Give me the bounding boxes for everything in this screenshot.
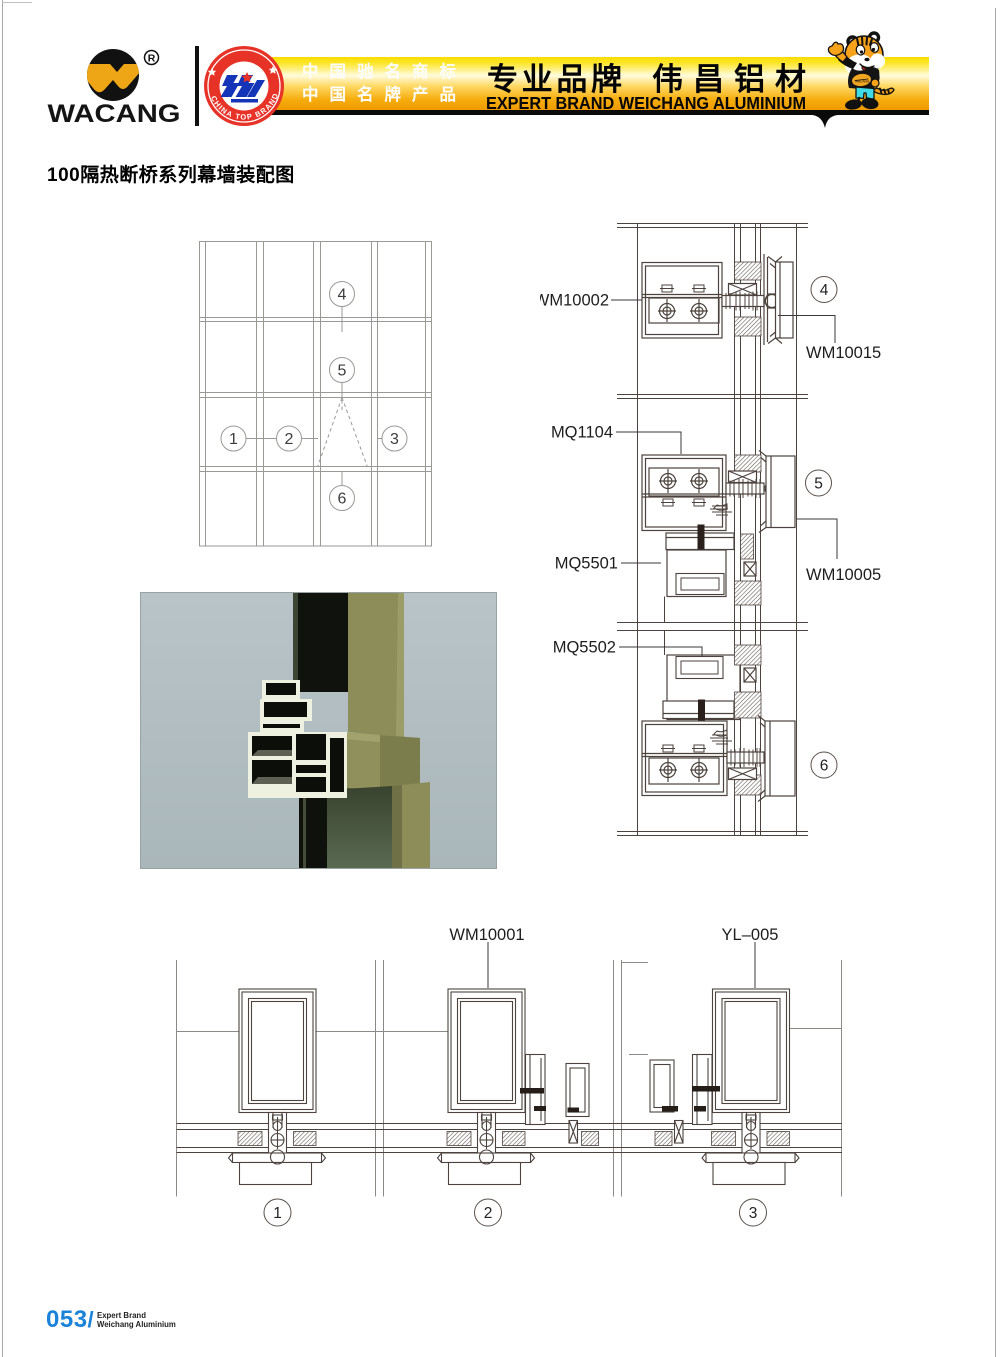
svg-text:3: 3 — [390, 431, 399, 448]
svg-text:WM10002: WM10002 — [540, 292, 609, 310]
svg-text:WM10001: WM10001 — [449, 926, 524, 944]
svg-text:WM10015: WM10015 — [806, 344, 881, 362]
svg-text:MQ1104: MQ1104 — [551, 424, 613, 442]
svg-text:1: 1 — [229, 431, 238, 448]
svg-text:WACANG: WACANG — [855, 80, 870, 84]
svg-text:MQ5502: MQ5502 — [553, 639, 616, 657]
svg-text:3: 3 — [749, 1205, 758, 1222]
svg-text:6: 6 — [338, 491, 347, 508]
svg-text:2: 2 — [484, 1205, 493, 1222]
svg-text:5: 5 — [338, 363, 347, 380]
svg-text:1: 1 — [273, 1205, 282, 1222]
svg-text:WACANG: WACANG — [48, 100, 181, 128]
svg-text:中国名牌产品: 中国名牌产品 — [302, 84, 467, 104]
svg-text:4: 4 — [820, 282, 829, 299]
svg-text:4: 4 — [338, 287, 347, 304]
svg-text:6: 6 — [820, 758, 829, 775]
svg-text:EXPERT BRAND WEICHANG ALUMINIU: EXPERT BRAND WEICHANG ALUMINIUM — [486, 93, 806, 113]
svg-text:MQ5501: MQ5501 — [555, 555, 618, 573]
svg-text:R: R — [148, 53, 156, 65]
svg-text:中国驰名商标: 中国驰名商标 — [302, 61, 467, 81]
svg-text:YL–005: YL–005 — [722, 926, 779, 944]
svg-text:2: 2 — [285, 431, 294, 448]
svg-text:WM10005: WM10005 — [806, 566, 881, 584]
svg-text:5: 5 — [814, 476, 823, 493]
